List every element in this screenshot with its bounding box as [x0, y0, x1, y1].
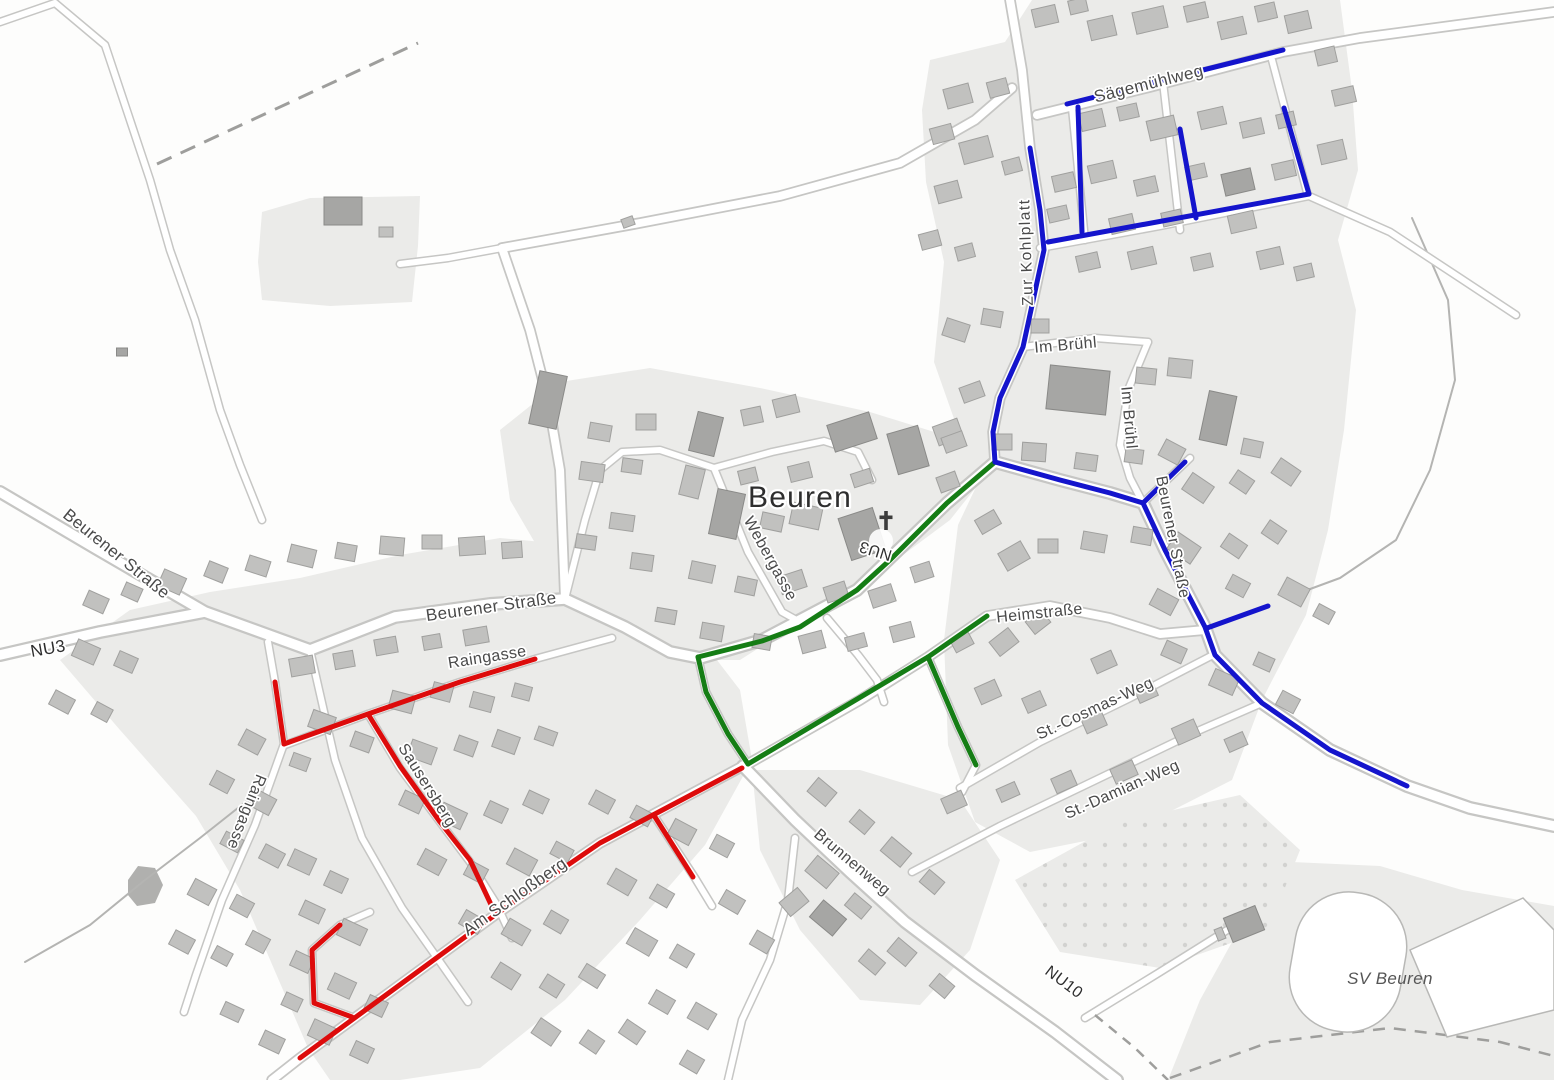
building	[1167, 358, 1193, 378]
building	[735, 576, 758, 596]
poi-label: SV Beuren	[1347, 969, 1433, 988]
building	[335, 542, 357, 561]
building	[575, 534, 597, 551]
building	[1038, 539, 1058, 553]
building	[981, 308, 1003, 327]
building	[333, 650, 355, 669]
building	[1031, 319, 1049, 333]
building	[1081, 531, 1108, 553]
building	[117, 348, 128, 356]
building	[579, 461, 605, 482]
building	[463, 626, 489, 646]
building	[324, 197, 362, 225]
building	[1241, 438, 1264, 458]
building	[588, 422, 612, 442]
building	[609, 512, 635, 531]
building	[1046, 365, 1110, 415]
building	[501, 541, 522, 558]
building	[379, 536, 404, 556]
building	[1131, 526, 1153, 545]
building	[655, 607, 677, 624]
map-svg: BeurenSägemühlwegZur KohlplattIm BrühlIm…	[0, 0, 1554, 1080]
place-label: Beuren	[748, 481, 852, 514]
building	[422, 535, 442, 549]
building	[1124, 448, 1144, 464]
building	[458, 536, 485, 556]
building	[636, 414, 656, 430]
building	[1074, 453, 1098, 472]
building	[700, 622, 724, 642]
map-canvas[interactable]: BeurenSägemühlwegZur KohlplattIm BrühlIm…	[0, 0, 1554, 1080]
building	[630, 553, 654, 572]
building	[379, 227, 393, 237]
building	[1135, 367, 1157, 385]
building	[374, 636, 398, 656]
building	[741, 406, 764, 426]
building	[289, 655, 316, 677]
church-cross-icon	[884, 511, 888, 530]
church-cross-icon	[880, 516, 893, 520]
building	[621, 458, 643, 475]
building	[422, 634, 442, 651]
building	[1021, 442, 1046, 462]
